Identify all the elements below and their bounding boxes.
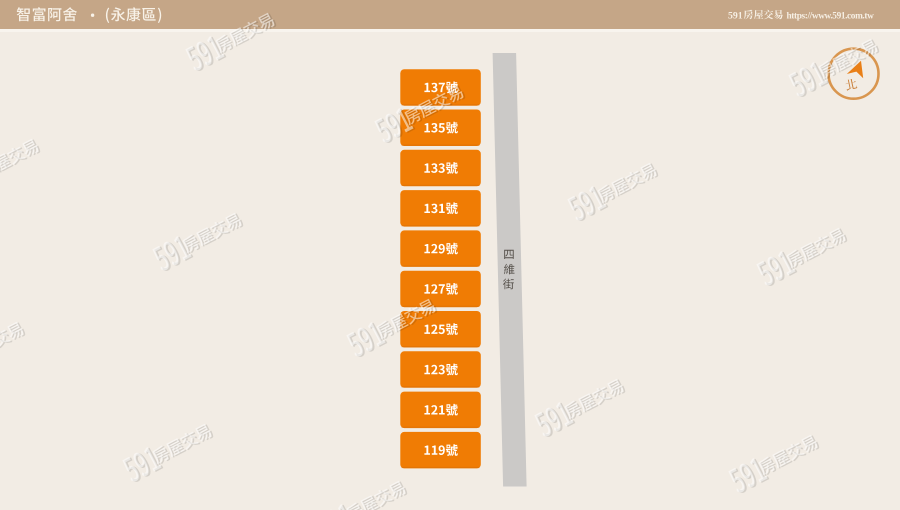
svg-text:591: 591 — [728, 10, 743, 21]
svg-text:https://www.591.com.tw: https://www.591.com.tw — [787, 11, 875, 21]
